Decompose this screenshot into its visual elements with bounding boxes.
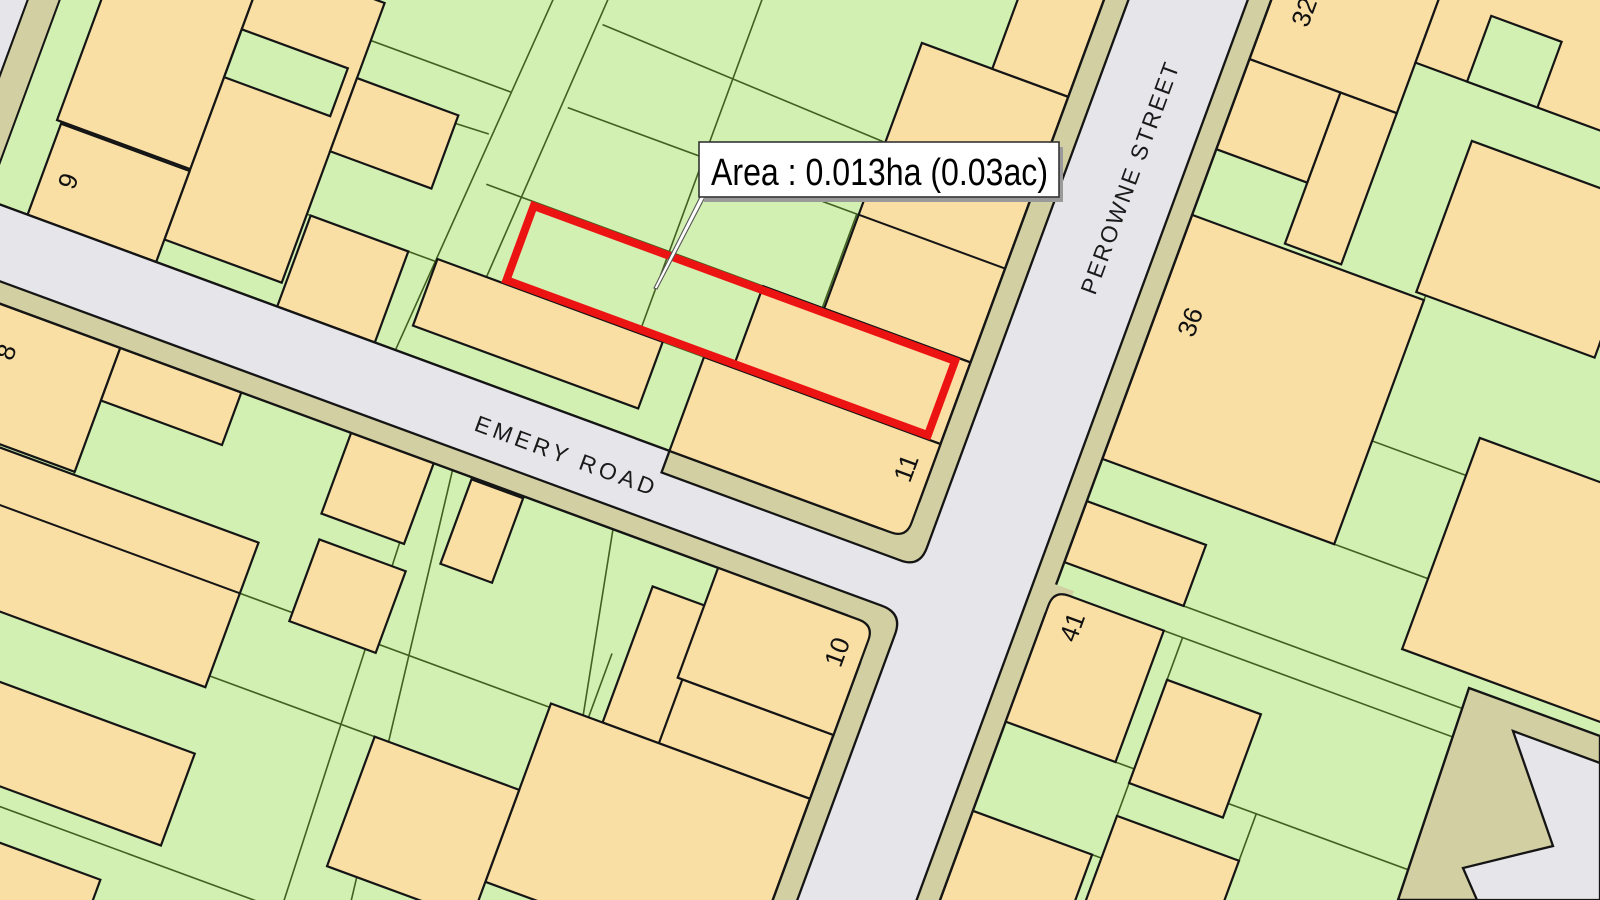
- svg-text:Area : 0.013ha (0.03ac): Area : 0.013ha (0.03ac): [711, 152, 1048, 194]
